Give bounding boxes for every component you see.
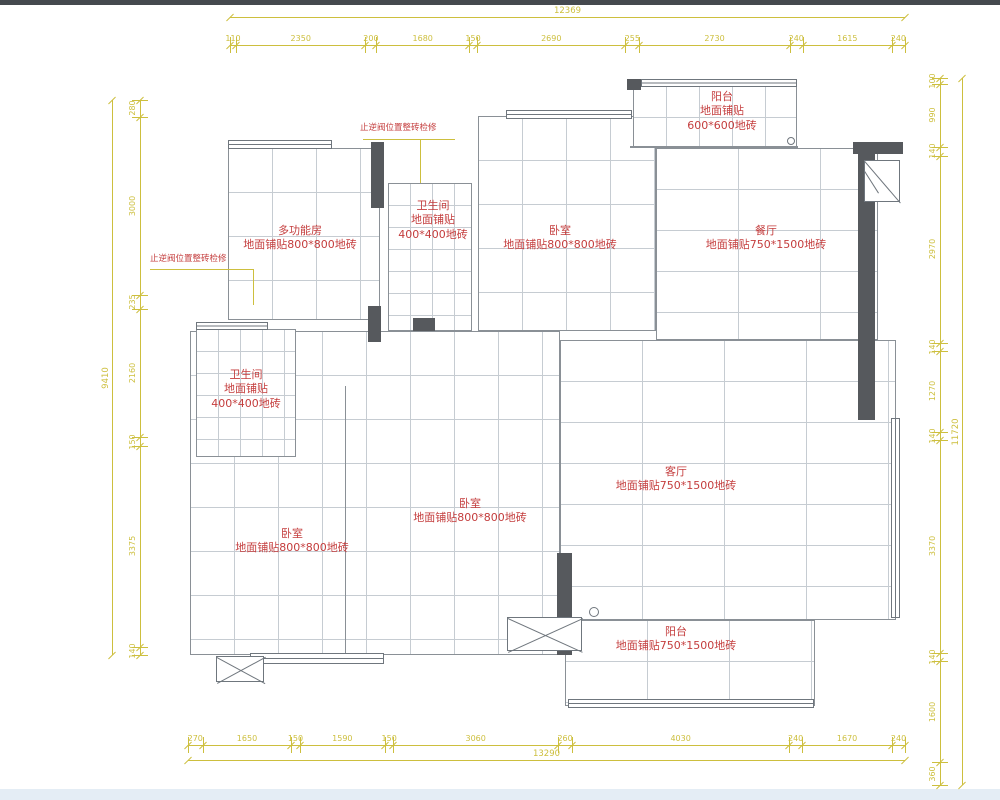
- room-tile-spec: 地面铺贴: [687, 104, 757, 118]
- wall-segment: [627, 79, 641, 90]
- window-bottom-edge: [0, 789, 1000, 800]
- diagonal-line: [864, 161, 901, 204]
- dim-seg-label: 2970: [929, 239, 937, 259]
- room-name: 卧室: [235, 527, 349, 541]
- dim-seg-label: 2690: [541, 35, 561, 43]
- dim-seg-label: 2160: [129, 363, 137, 383]
- dim-seg-label: 1615: [837, 35, 857, 43]
- dim-ext: [932, 440, 948, 441]
- dim-ext: [132, 446, 148, 447]
- dim-line-overall: [112, 100, 113, 655]
- window: [228, 140, 332, 149]
- dim-seg-label: 1600: [929, 702, 937, 722]
- dim-seg-label: 2350: [291, 35, 311, 43]
- window: [641, 79, 797, 87]
- room-label: 卫生间地面铺贴400*400地砖: [211, 368, 281, 411]
- dim-seg-label: 240: [891, 735, 906, 743]
- crossed-box-symbol: [216, 656, 264, 682]
- leader-line: [253, 269, 254, 305]
- room-tile-spec: 地面铺贴800*800地砖: [243, 238, 357, 252]
- window: [891, 418, 900, 618]
- room-name: 卧室: [413, 497, 527, 511]
- wall-segment: [371, 142, 384, 208]
- room-label: 阳台地面铺贴600*600地砖: [687, 90, 757, 133]
- dim-ext: [932, 762, 948, 763]
- room-label: 客厅地面铺贴750*1500地砖: [616, 465, 737, 494]
- dim-ext: [300, 737, 301, 753]
- dim-seg-label: 150: [288, 735, 303, 743]
- dim-seg-label: 240: [788, 735, 803, 743]
- circle-symbol: [589, 607, 599, 617]
- floorplan-canvas: 多功能房地面铺贴800*800地砖卫生间地面铺贴400*400地砖卧室地面铺贴8…: [0, 0, 1000, 800]
- interior-wall-line: [630, 146, 798, 148]
- room-name: 卧室: [503, 224, 617, 238]
- room-label: 卧室地面铺贴800*800地砖: [503, 224, 617, 253]
- interior-wall-line: [815, 340, 895, 341]
- window: [196, 322, 268, 330]
- dim-seg-label: 1270: [929, 381, 937, 401]
- wall-segment: [853, 142, 903, 154]
- wall-segment: [413, 318, 435, 331]
- room-tile-spec: 地面铺贴800*800地砖: [235, 541, 349, 555]
- dim-line-overall: [962, 78, 963, 785]
- dim-seg-label: 240: [891, 35, 906, 43]
- dim-seg-label: 4030: [670, 735, 690, 743]
- room-name: 多功能房: [243, 224, 357, 238]
- dim-seg-label: 990: [929, 108, 937, 123]
- dim-line: [188, 745, 905, 746]
- dim-seg-label: 3370: [929, 536, 937, 556]
- circle-symbol: [787, 137, 795, 145]
- leader-note: 止逆阀位置整砖检修: [150, 255, 227, 264]
- dim-ext: [376, 37, 377, 53]
- dim-line: [140, 100, 141, 655]
- wall-segment: [368, 306, 381, 342]
- room-tile-spec: 地面铺贴: [211, 382, 281, 396]
- dim-overall-label: 13290: [533, 750, 560, 759]
- dim-ext: [132, 655, 148, 656]
- dim-seg-label: 1650: [237, 735, 257, 743]
- room-label: 阳台地面铺贴750*1500地砖: [616, 625, 737, 654]
- dim-overall-label: 9410: [102, 367, 111, 389]
- room-name: 客厅: [616, 465, 737, 479]
- leader-line: [363, 139, 455, 140]
- crossed-box-symbol: [507, 617, 582, 651]
- dim-overall-label: 11720: [952, 418, 961, 445]
- dim-overall-label: 12369: [554, 7, 581, 16]
- room-tile-spec: 600*600地砖: [687, 119, 757, 133]
- room-tile-spec: 地面铺贴750*1500地砖: [616, 479, 737, 493]
- room-name: 阳台: [687, 90, 757, 104]
- leader-line: [150, 269, 254, 270]
- room-label: 卫生间地面铺贴400*400地砖: [398, 199, 468, 242]
- dim-seg-label: 1670: [837, 735, 857, 743]
- dim-ext: [802, 737, 803, 753]
- dim-seg-label: 1680: [413, 35, 433, 43]
- room-tile-spec: 地面铺贴: [398, 213, 468, 227]
- dim-ext: [932, 351, 948, 352]
- dim-seg-label: 270: [188, 735, 203, 743]
- dim-seg-label: 360: [929, 766, 937, 781]
- room-tile-spec: 地面铺贴750*1500地砖: [706, 238, 827, 252]
- dim-ext: [572, 737, 573, 753]
- room-label: 卧室地面铺贴800*800地砖: [413, 497, 527, 526]
- access-panel-symbol: [864, 160, 900, 202]
- interior-wall-line: [345, 386, 346, 654]
- dim-ext: [132, 309, 148, 310]
- room-tile-spec: 地面铺贴800*800地砖: [503, 238, 617, 252]
- dim-seg-label: 1590: [332, 735, 352, 743]
- room-name: 卫生间: [211, 368, 281, 382]
- leader-line: [420, 139, 421, 183]
- dim-ext: [477, 37, 478, 53]
- dim-ext: [932, 84, 948, 85]
- dim-seg-label: 240: [789, 35, 804, 43]
- dim-seg-label: 260: [557, 735, 572, 743]
- dim-seg-label: 3000: [129, 196, 137, 216]
- dim-ext: [803, 37, 804, 53]
- dim-ext: [905, 37, 906, 53]
- room-name: 阳台: [616, 625, 737, 639]
- dim-seg-label: 235: [129, 294, 137, 309]
- dim-seg-label: 255: [625, 35, 640, 43]
- dim-ext: [932, 661, 948, 662]
- room-name: 餐厅: [706, 224, 827, 238]
- room-tile-spec: 400*400地砖: [211, 397, 281, 411]
- dim-ext: [393, 737, 394, 753]
- room-label: 多功能房地面铺贴800*800地砖: [243, 224, 357, 253]
- dim-ext: [932, 785, 948, 786]
- window: [250, 653, 384, 664]
- window: [506, 110, 632, 119]
- dim-line-overall: [188, 760, 905, 761]
- dim-ext: [905, 737, 906, 753]
- dim-ext: [203, 737, 204, 753]
- dim-ext: [932, 156, 948, 157]
- room-label: 餐厅地面铺贴750*1500地砖: [706, 224, 827, 253]
- room-tile-spec: 地面铺贴750*1500地砖: [616, 639, 737, 653]
- dim-line-overall: [230, 17, 905, 18]
- dim-seg-label: 3060: [465, 735, 485, 743]
- room-label: 卧室地面铺贴800*800地砖: [235, 527, 349, 556]
- window: [568, 699, 814, 708]
- room-tile-spec: 地面铺贴800*800地砖: [413, 511, 527, 525]
- dim-ext: [132, 117, 148, 118]
- window-top-edge: [0, 0, 1000, 5]
- room-name: 卫生间: [398, 199, 468, 213]
- dim-seg-label: 280: [129, 101, 137, 116]
- dim-seg-label: 140: [129, 643, 137, 658]
- dim-ext: [639, 37, 640, 53]
- dim-seg-label: 3375: [129, 536, 137, 556]
- dim-seg-label: 2730: [704, 35, 724, 43]
- room-tile-spec: 400*400地砖: [398, 228, 468, 242]
- dim-ext: [236, 37, 237, 53]
- leader-note: 止逆阀位置整砖检修: [360, 124, 437, 133]
